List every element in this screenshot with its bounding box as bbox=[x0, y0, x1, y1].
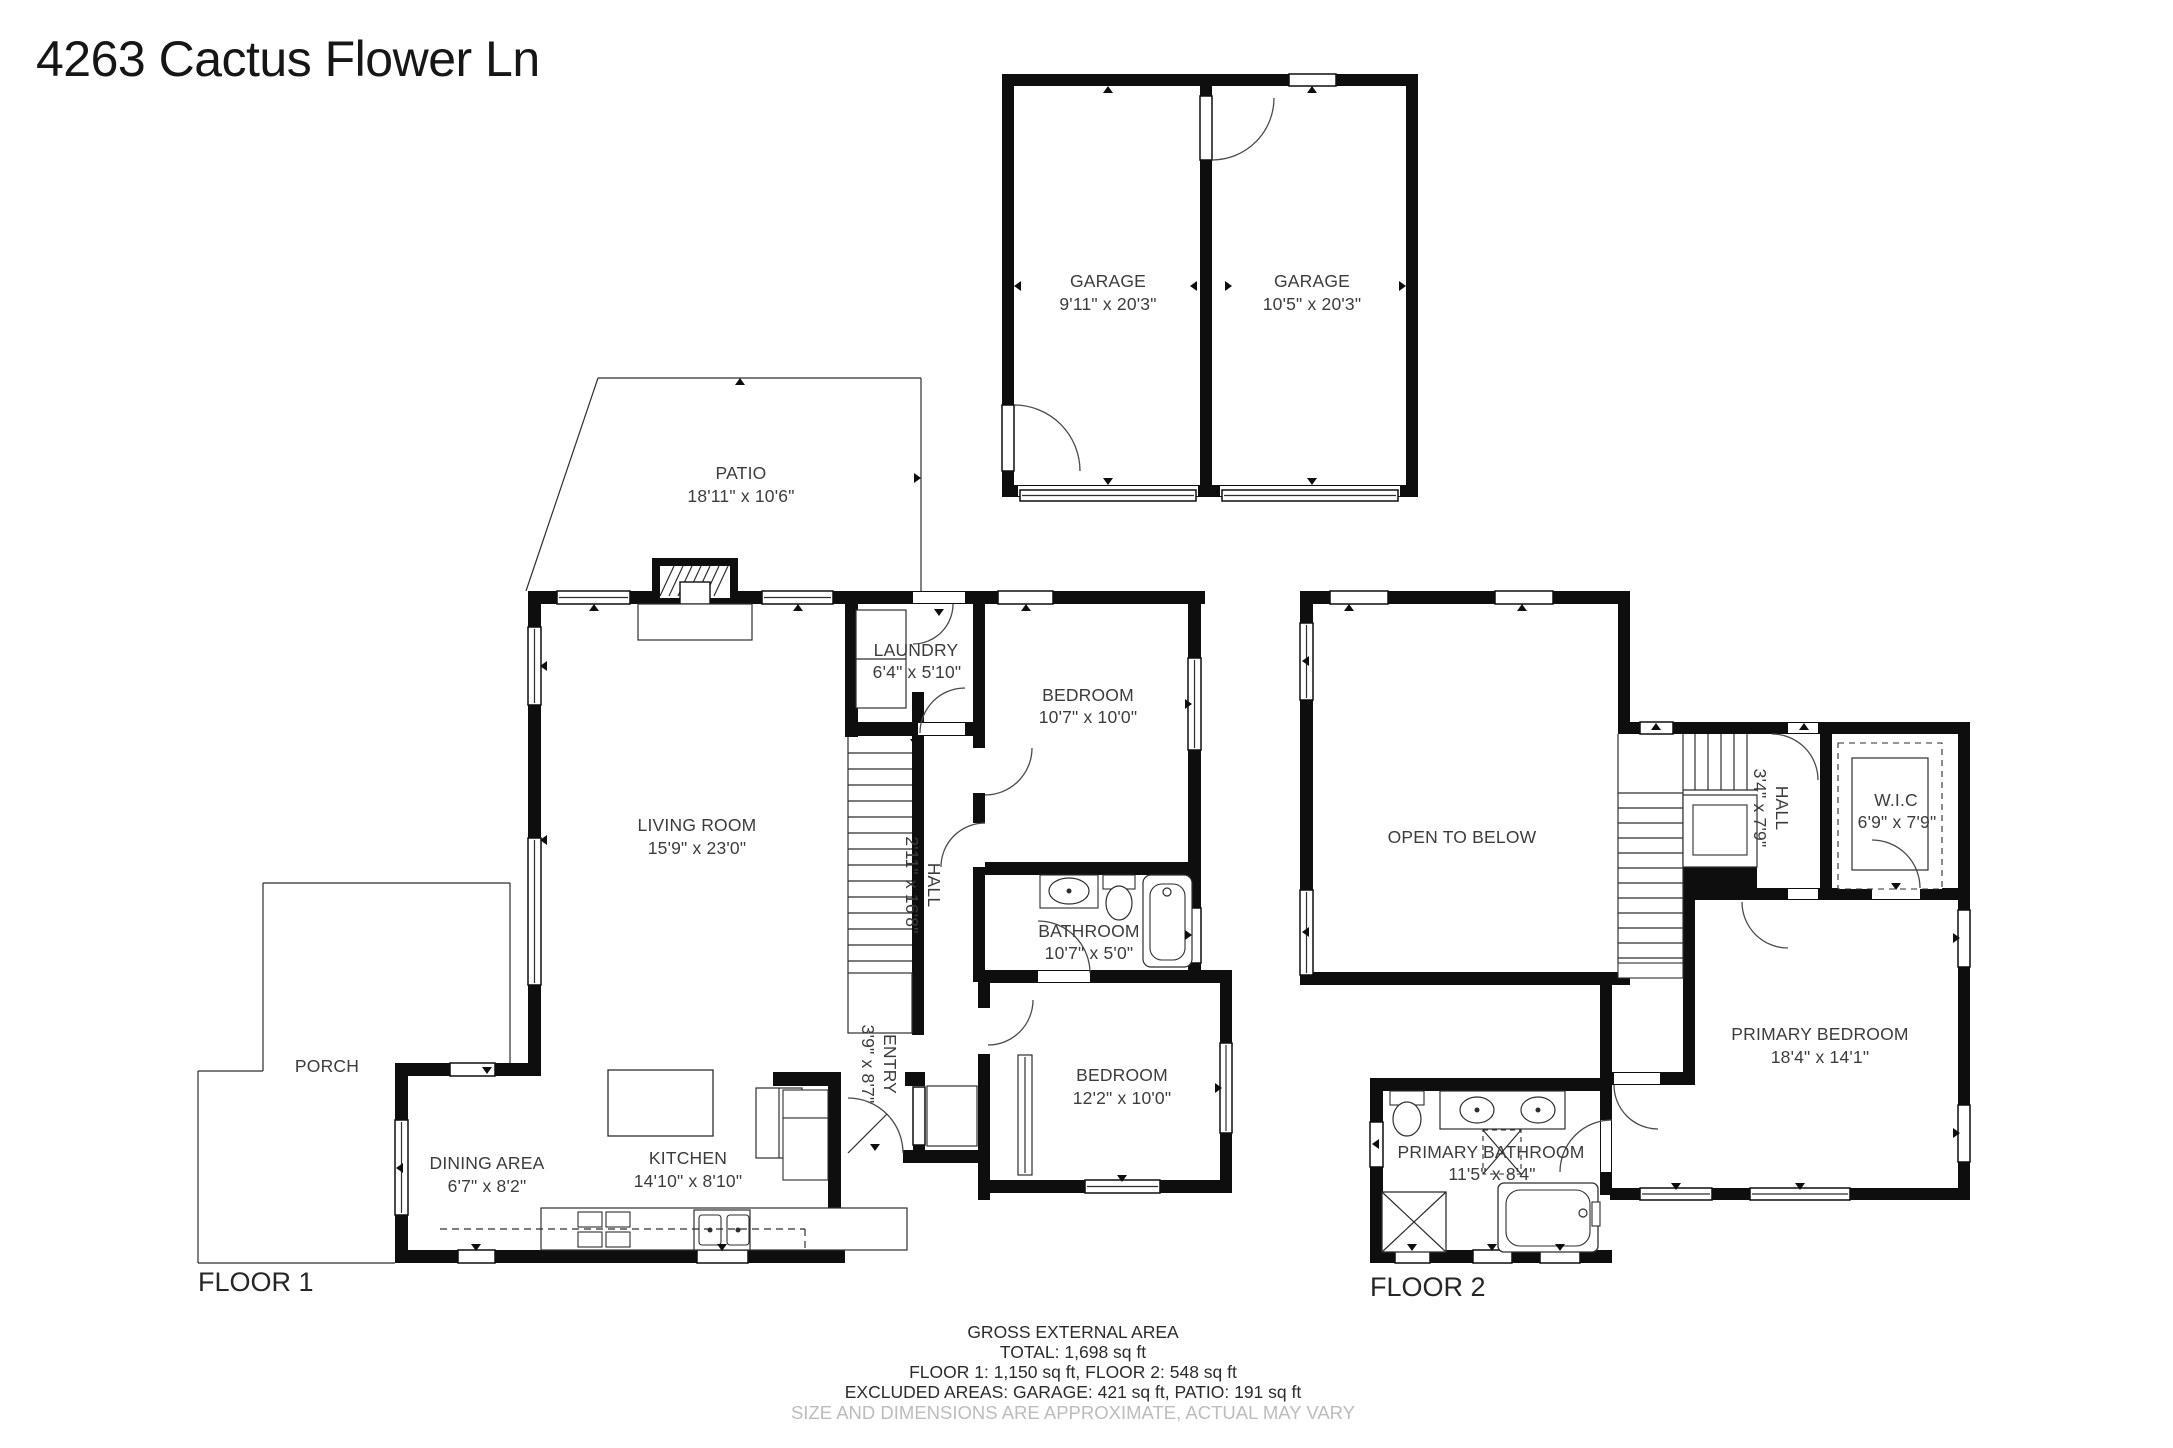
room-label-bedroom-bottom: BEDROOM bbox=[1076, 1065, 1168, 1085]
footer-floor-areas: FLOOR 1: 1,150 sq ft, FLOOR 2: 548 sq ft bbox=[909, 1362, 1237, 1382]
door-arc-bedroom-top bbox=[985, 748, 1032, 795]
window bbox=[1002, 405, 1014, 471]
wall bbox=[985, 862, 1200, 875]
door-opening bbox=[1601, 1120, 1611, 1172]
dimension-tick bbox=[589, 604, 599, 611]
wall bbox=[773, 1072, 841, 1086]
room-label-hall-f2: HALL bbox=[1772, 786, 1792, 831]
room-label-wic: W.I.C bbox=[1874, 790, 1918, 810]
room-label-dining-area: DINING AREA bbox=[429, 1153, 544, 1173]
dimension-tick bbox=[793, 604, 803, 611]
window bbox=[1289, 74, 1336, 86]
room-label-hall-f1: HALL bbox=[924, 863, 944, 908]
door-arc-hall2-north bbox=[1772, 734, 1818, 780]
dimension-tick bbox=[1344, 604, 1354, 611]
room-label-group-entry: ENTRY 3'9" x 8'7" bbox=[858, 1025, 900, 1104]
dimension-tick bbox=[1517, 604, 1527, 611]
wall bbox=[978, 970, 990, 1200]
room-label-group-hall-f2: HALL 3'4" x 7'9" bbox=[1750, 769, 1792, 848]
room-dims-primary-bedroom: 18'4" x 14'1" bbox=[1771, 1047, 1870, 1067]
stove-burner bbox=[578, 1232, 602, 1247]
bathtub2-jet bbox=[1592, 1202, 1600, 1226]
wall bbox=[1370, 1078, 1383, 1263]
dimension-tick bbox=[1021, 604, 1031, 611]
door-arc-laundry-north bbox=[913, 604, 953, 644]
bathtub2-faucet bbox=[1579, 1209, 1587, 1217]
dimension-tick bbox=[1103, 478, 1113, 485]
dimension-tick bbox=[870, 1144, 880, 1151]
front-door-leaf bbox=[848, 1114, 887, 1153]
room-label-laundry: LAUNDRY bbox=[874, 640, 959, 660]
room-label-garage-left: GARAGE bbox=[1070, 271, 1146, 291]
door-opening bbox=[1788, 889, 1818, 899]
sink-drain bbox=[736, 1228, 741, 1233]
room-label-open-to-below: OPEN TO BELOW bbox=[1388, 827, 1537, 847]
stair-landing bbox=[848, 973, 912, 1033]
dimension-tick bbox=[1399, 281, 1406, 291]
floor2-label: FLOOR 2 bbox=[1370, 1272, 1486, 1302]
toilet1-bowl bbox=[1106, 886, 1132, 920]
wall bbox=[1370, 1078, 1612, 1091]
kitchen-island bbox=[608, 1070, 713, 1136]
window bbox=[913, 1087, 925, 1145]
wall bbox=[1300, 972, 1630, 985]
door-opening bbox=[1872, 889, 1920, 899]
door-opening bbox=[1614, 1073, 1660, 1084]
room-label-living-room: LIVING ROOM bbox=[638, 815, 757, 835]
plan-title: 4263 Cactus Flower Ln bbox=[36, 31, 540, 87]
wall bbox=[1600, 972, 1612, 1085]
pantry-shelf bbox=[783, 1118, 828, 1180]
dimension-tick bbox=[1225, 281, 1232, 291]
door-opening bbox=[918, 723, 965, 735]
stove-burner bbox=[578, 1212, 602, 1227]
room-dims-laundry: 6'4" x 5'10" bbox=[873, 662, 962, 682]
wall bbox=[973, 591, 985, 722]
door-opening bbox=[978, 1008, 990, 1054]
room-label-entry: ENTRY bbox=[880, 1034, 900, 1094]
room-label-primary-bedroom: PRIMARY BEDROOM bbox=[1731, 1024, 1908, 1044]
dimension-tick bbox=[735, 378, 745, 385]
wall bbox=[1820, 722, 1832, 900]
room-dims-living-room: 15'9" x 23'0" bbox=[648, 838, 747, 858]
toilet2-bowl bbox=[1393, 1102, 1421, 1136]
window bbox=[458, 1250, 495, 1263]
room-label-garage-right: GARAGE bbox=[1274, 271, 1350, 291]
bathtub1-faucet bbox=[1163, 888, 1171, 896]
patio-outline bbox=[526, 378, 598, 591]
room-dims-garage-left: 9'11" x 20'3" bbox=[1059, 294, 1156, 314]
wall bbox=[1683, 898, 1695, 1076]
room-label-porch: PORCH bbox=[295, 1056, 359, 1076]
entry-closet bbox=[927, 1086, 977, 1146]
wall bbox=[1618, 604, 1630, 734]
bath1-sink-drain bbox=[1067, 889, 1072, 894]
door-arc-bedroom-bottom bbox=[988, 1000, 1033, 1045]
door-opening bbox=[973, 748, 985, 793]
room-dims-dining-area: 6'7" x 8'2" bbox=[448, 1176, 527, 1196]
room-dims-entry: 3'9" x 8'7" bbox=[858, 1025, 878, 1104]
stove-burner bbox=[606, 1232, 630, 1247]
dimension-tick bbox=[1307, 478, 1317, 485]
dimension-tick bbox=[934, 609, 944, 616]
dimension-tick bbox=[1103, 86, 1113, 93]
footer-total: TOTAL: 1,698 sq ft bbox=[1000, 1342, 1146, 1362]
door-arc-corridor-bath2 bbox=[1614, 1085, 1658, 1129]
door-arc-garage-side bbox=[1014, 405, 1080, 471]
fireplace-hearth bbox=[638, 604, 752, 640]
door-opening bbox=[841, 1150, 903, 1163]
footer-excluded: EXCLUDED AREAS: GARAGE: 421 sq ft, PATIO… bbox=[845, 1382, 1302, 1402]
dimension-tick bbox=[1190, 281, 1197, 291]
floorplan-canvas: 4263 Cactus Flower Ln GARAGE 9'11" x 20'… bbox=[0, 0, 2173, 1448]
room-label-patio: PATIO bbox=[716, 463, 767, 483]
sink-drain bbox=[708, 1228, 713, 1233]
room-dims-wic: 6'9" x 7'9" bbox=[1858, 812, 1937, 832]
room-dims-bathroom-f1: 10'7" x 5'0" bbox=[1045, 943, 1134, 963]
room-label-primary-bathroom: PRIMARY BATHROOM bbox=[1398, 1142, 1585, 1162]
room-dims-bedroom-top: 10'7" x 10'0" bbox=[1039, 707, 1138, 727]
dimension-tick bbox=[1307, 86, 1317, 93]
room-label-bathroom-f1: BATHROOM bbox=[1038, 921, 1139, 941]
stair2-bottom-landing bbox=[1618, 963, 1683, 978]
door-opening bbox=[1038, 971, 1090, 982]
room-dims-garage-right: 10'5" x 20'3" bbox=[1263, 294, 1362, 314]
window bbox=[697, 1250, 748, 1263]
window bbox=[1958, 1105, 1970, 1162]
room-dims-primary-bathroom: 11'5" x 8'4" bbox=[1448, 1164, 1535, 1184]
bathtub2-inner bbox=[1506, 1190, 1590, 1246]
wall bbox=[905, 1072, 925, 1086]
stair2-landing-inner bbox=[1693, 805, 1747, 855]
floor1-label: FLOOR 1 bbox=[198, 1267, 314, 1297]
footer-gross-area: GROSS EXTERNAL AREA bbox=[967, 1322, 1179, 1342]
door-opening bbox=[973, 823, 985, 867]
room-label-bedroom-top: BEDROOM bbox=[1042, 685, 1134, 705]
door-arc-garage-divider bbox=[1212, 98, 1274, 160]
bath2-sink-drain bbox=[1475, 1108, 1480, 1113]
dimension-tick bbox=[1014, 281, 1021, 291]
window bbox=[1200, 96, 1212, 160]
room-dims-patio: 18'11" x 10'6" bbox=[687, 486, 794, 506]
wall bbox=[1406, 74, 1418, 497]
room-dims-hall-f1: 2'11" x 16'8" bbox=[902, 836, 922, 933]
room-label-kitchen: KITCHEN bbox=[649, 1148, 727, 1168]
fireplace-firebox bbox=[680, 582, 710, 604]
bath2-sink-drain bbox=[1536, 1108, 1541, 1113]
room-dims-hall-f2: 3'4" x 7'9" bbox=[1750, 769, 1770, 848]
window bbox=[1958, 910, 1970, 967]
pantry-shelf bbox=[783, 1090, 828, 1118]
door-opening bbox=[913, 592, 965, 603]
footer-disclaimer: SIZE AND DIMENSIONS ARE APPROXIMATE, ACT… bbox=[791, 1402, 1355, 1423]
window bbox=[998, 591, 1053, 604]
dimension-tick bbox=[914, 473, 921, 483]
window bbox=[1495, 591, 1553, 604]
door-arc-hall2-south bbox=[1742, 902, 1788, 948]
room-dims-kitchen: 14'10" x 8'10" bbox=[634, 1171, 743, 1191]
window bbox=[1330, 591, 1388, 604]
stove-burner bbox=[606, 1212, 630, 1227]
room-dims-bedroom-bottom: 12'2" x 10'0" bbox=[1073, 1088, 1172, 1108]
wall bbox=[1683, 867, 1757, 898]
